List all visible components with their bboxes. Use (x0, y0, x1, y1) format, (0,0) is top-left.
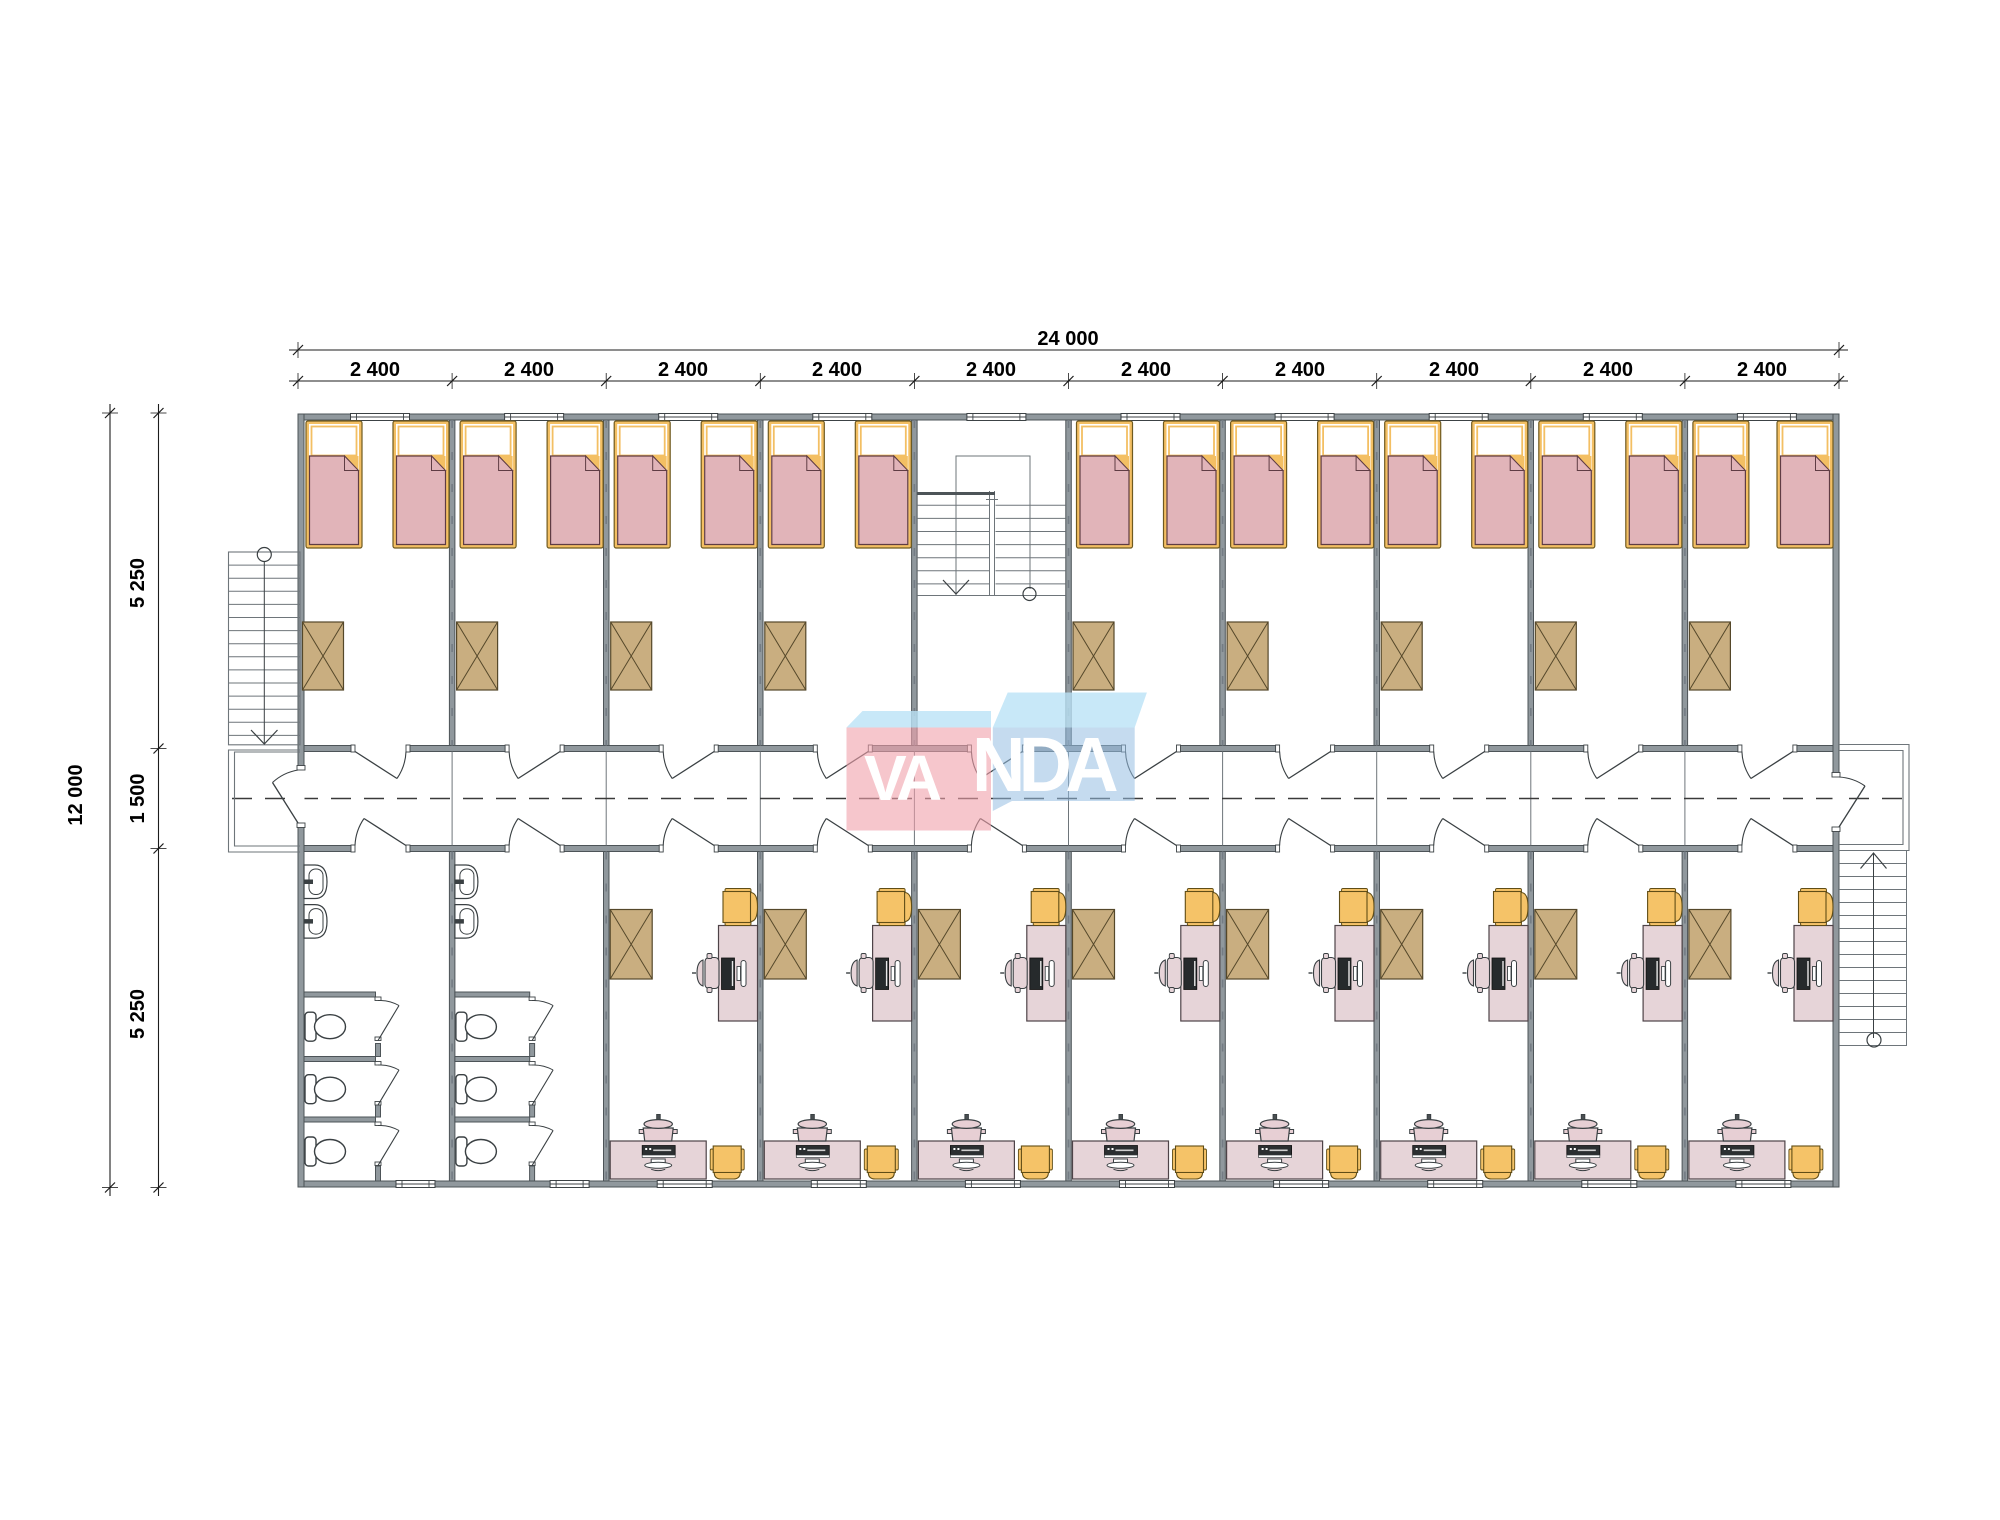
svg-text:NDA: NDA (972, 722, 1117, 808)
svg-text:2 400: 2 400 (1429, 359, 1479, 381)
svg-text:2 400: 2 400 (1121, 359, 1171, 381)
svg-text:2 400: 2 400 (1737, 359, 1787, 381)
svg-text:1 500: 1 500 (127, 773, 149, 823)
svg-text:2 400: 2 400 (1583, 359, 1633, 381)
svg-text:2 400: 2 400 (350, 359, 400, 381)
svg-text:2 400: 2 400 (658, 359, 708, 381)
svg-text:2 400: 2 400 (504, 359, 554, 381)
svg-text:2 400: 2 400 (812, 359, 862, 381)
svg-text:24 000: 24 000 (1037, 328, 1098, 350)
svg-text:2 400: 2 400 (966, 359, 1016, 381)
svg-text:VA: VA (864, 742, 941, 814)
svg-text:12 000: 12 000 (65, 764, 87, 825)
svg-text:2 400: 2 400 (1275, 359, 1325, 381)
svg-text:5 250: 5 250 (127, 558, 149, 608)
svg-text:5 250: 5 250 (127, 989, 149, 1039)
